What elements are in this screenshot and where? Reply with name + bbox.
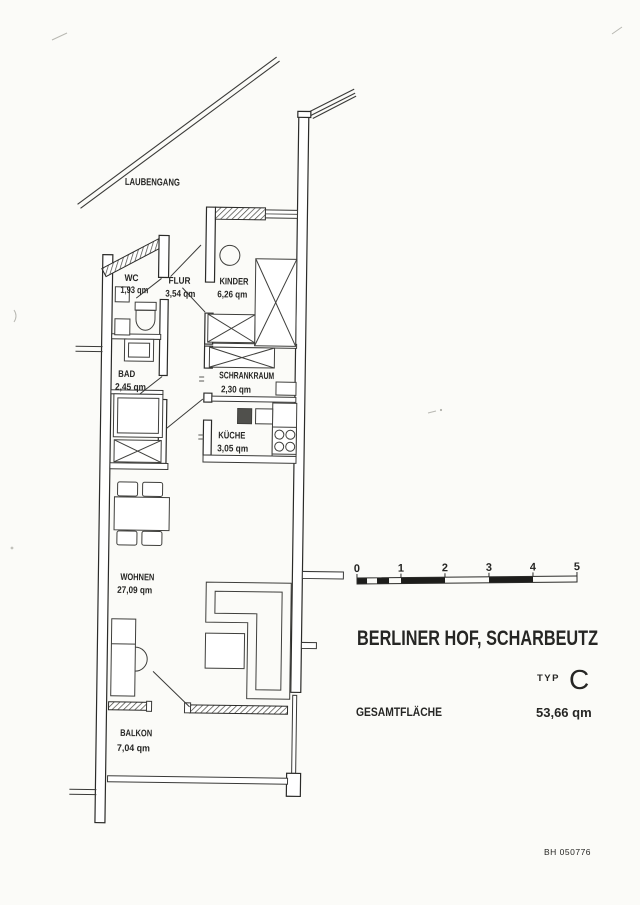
kinder-bed xyxy=(255,259,297,347)
scale-label-1: 1 xyxy=(398,563,404,575)
room-label-flur: FLUR xyxy=(168,276,190,287)
scale-label-4: 4 xyxy=(530,561,537,573)
room-area-wohnen: 27,09 qm xyxy=(117,585,152,596)
kinder-wardrobe xyxy=(208,314,255,343)
room-label-bad: BAD xyxy=(118,369,135,380)
room-area-kinder: 6,26 qm xyxy=(217,289,247,300)
total-area-value: 53,66 qm xyxy=(536,705,592,720)
coffee-table xyxy=(205,633,244,669)
walkway-label: LAUBENGANG xyxy=(125,177,180,189)
scale-bar: 0 1 2 3 4 5 xyxy=(354,561,580,584)
wohnen-window-left xyxy=(109,702,151,711)
sideboard xyxy=(111,619,148,696)
room-label-kueche: KÜCHE xyxy=(218,430,245,441)
wc-cabinet xyxy=(115,319,130,335)
scale-bar-segments xyxy=(357,576,577,584)
type-label: TYP xyxy=(537,673,560,684)
room-area-wc: 1,93 qm xyxy=(120,285,148,296)
scale-label-0: 0 xyxy=(354,563,360,575)
scanned-floor-plan-page: WC 1,93 qm FLUR 3,54 qm KINDER 6,26 qm B… xyxy=(0,0,640,905)
furniture xyxy=(110,244,299,700)
room-label-wohnen: WOHNEN xyxy=(120,572,154,583)
walls xyxy=(69,108,350,826)
room-label-schrankraum: SCHRANKRAUM xyxy=(219,370,274,382)
room-area-kueche: 3,05 qm xyxy=(217,443,248,454)
entrance-door xyxy=(171,245,201,277)
kinder-table xyxy=(220,245,240,265)
bad-washbasin xyxy=(124,339,153,361)
kinder-window xyxy=(215,207,265,220)
room-label-balkon: BALKON xyxy=(120,728,152,739)
hall-wardrobe xyxy=(114,440,161,463)
balcony-door xyxy=(153,671,190,707)
room-area-balkon: 7,04 qm xyxy=(117,743,150,754)
floor-plan: WC 1,93 qm FLUR 3,54 qm KINDER 6,26 qm B… xyxy=(69,54,357,826)
toilet xyxy=(135,302,156,330)
type-value: C xyxy=(569,664,589,695)
room-area-bad: 2,45 qm xyxy=(115,382,146,393)
dining-table xyxy=(114,497,169,531)
kitchen-worktop xyxy=(256,409,273,424)
stove xyxy=(272,427,296,454)
title-block: BERLINER HOF, SCHARBEUTZ TYP C GESAMTFLÄ… xyxy=(356,627,598,720)
corridor-door xyxy=(166,399,202,429)
scale-label-3: 3 xyxy=(486,562,492,574)
laubengang-walkway-lines xyxy=(78,54,357,212)
schrankraum-cabinet xyxy=(276,382,296,395)
room-area-schrankraum: 2,30 qm xyxy=(221,384,251,395)
scale-label-2: 2 xyxy=(442,562,448,574)
project-title: BERLINER HOF, SCHARBEUTZ xyxy=(357,627,598,650)
room-label-kinder: KINDER xyxy=(219,276,248,287)
schrankraum-closet xyxy=(209,347,274,368)
drawing-number: BH 050776 xyxy=(544,847,591,857)
scale-label-5: 5 xyxy=(574,561,580,573)
room-area-flur: 3,54 qm xyxy=(165,289,195,300)
room-label-wc: WC xyxy=(124,273,138,284)
kitchen-sink xyxy=(238,409,252,424)
total-area-label: GESAMTFLÄCHE xyxy=(356,706,442,719)
floor-plan-drawing: WC 1,93 qm FLUR 3,54 qm KINDER 6,26 qm B… xyxy=(0,0,640,905)
shower xyxy=(113,394,163,438)
wohnen-window-right xyxy=(189,705,287,714)
